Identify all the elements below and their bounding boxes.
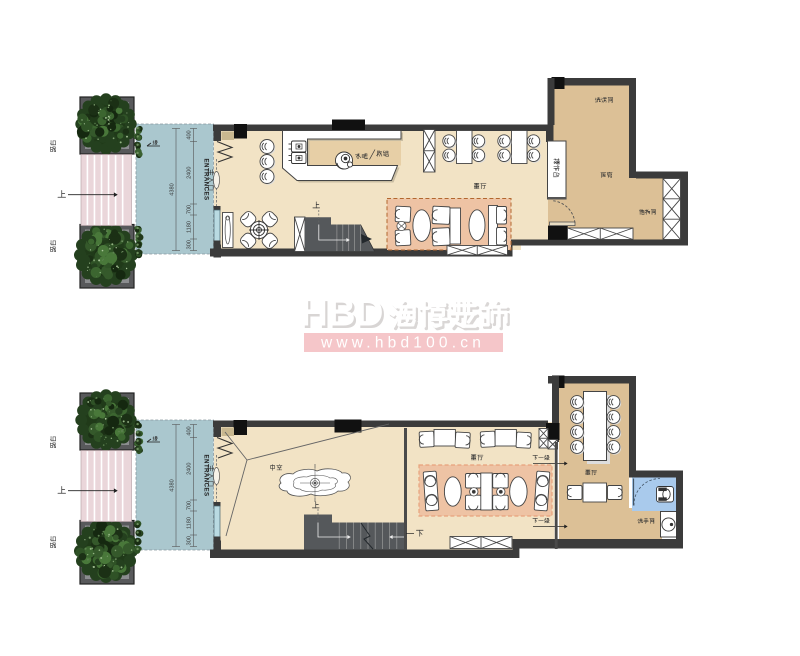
svg-text:300: 300 [187,240,193,249]
svg-text:4380: 4380 [170,183,176,195]
svg-text:www.hbd100.cn: www.hbd100.cn [320,335,485,352]
svg-text:1180: 1180 [187,221,193,233]
svg-text:2400: 2400 [187,462,193,474]
svg-text:400: 400 [187,130,193,139]
svg-text:ENTRANCES: ENTRANCES [203,158,210,200]
svg-text:4380: 4380 [170,479,176,491]
svg-text:700: 700 [187,205,193,214]
svg-text:ENTRANCES: ENTRANCES [203,454,210,496]
svg-text:HBD: HBD [300,292,383,335]
svg-text:2400: 2400 [187,166,193,178]
svg-text:300: 300 [187,536,193,545]
svg-text:1180: 1180 [187,517,193,529]
svg-text:700: 700 [187,501,193,510]
svg-text:400: 400 [187,426,193,435]
